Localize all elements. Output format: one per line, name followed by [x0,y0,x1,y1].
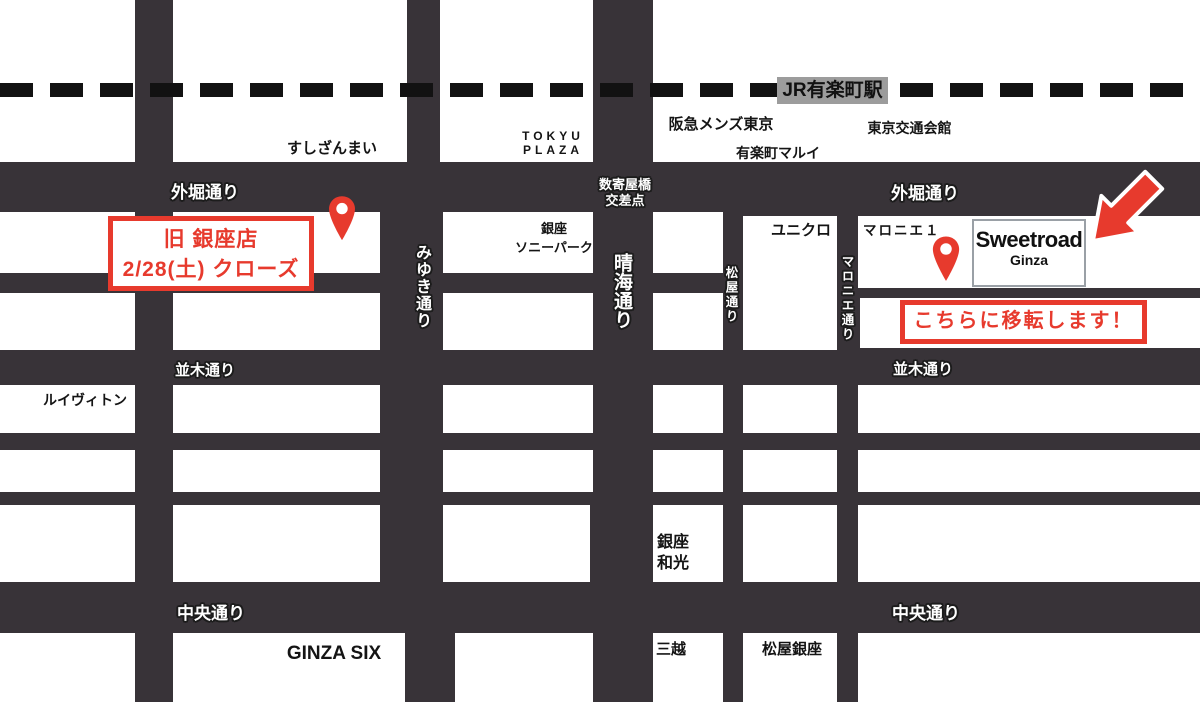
sweetroad-name: Sweetroad [974,228,1084,252]
city-block [0,633,135,702]
city-block [858,633,1200,702]
road-label-namiki-left: 並木通り [155,359,255,380]
sweetroad-subname: Ginza [974,252,1084,269]
tokyu-plaza-line1: TOKYU [503,129,603,143]
city-block [0,450,135,492]
city-block [743,505,837,582]
landmark-matsuya-ginza: 松屋銀座 [749,641,835,659]
city-block [0,293,135,350]
city-block [653,385,723,433]
road-label-matsuya: 松屋通り [724,266,737,324]
city-block [653,293,723,350]
railway-line [0,83,1200,97]
sony-park-line1: 銀座 [499,220,609,239]
city-block [455,633,593,702]
road-label-namiki-right: 並木通り [873,358,973,379]
landmark-uniqlo: ユニクロ [765,222,837,240]
map-pin-old-store-icon [327,195,357,242]
arrow-icon [1072,158,1176,262]
landmark-tokyu-plaza: TOKYU PLAZA [503,129,603,158]
city-block [0,0,135,162]
sony-park-line2: ソニーパーク [499,239,609,258]
road-label-harumi: 晴海通り [612,253,631,329]
city-block [173,505,380,582]
city-block [743,450,837,492]
intersection-label-sukiyabashi: 数寄屋橋 交差点 [580,177,670,210]
city-block [858,505,1200,582]
city-block [443,450,593,492]
old-store-line1: 旧 銀座店 [113,225,309,255]
landmark-sony-park: 銀座 ソニーパーク [499,220,609,258]
road-label-sotobori-right: 外堀通り [875,179,975,204]
relocation-callout: こちらに移転します！ [900,300,1147,344]
city-block [858,385,1200,433]
city-block [653,212,723,273]
city-block [173,0,407,162]
city-block [173,293,380,350]
station-badge: JR有楽町駅 [777,77,888,104]
landmark-kotsu-kaikan: 東京交通会館 [852,120,967,137]
landmark-hankyu-mens: 阪急メンズ東京 [656,116,786,134]
old-store-callout: 旧 銀座店 2/28(土) クローズ [108,216,314,291]
landmark-sushizanmai: すしざんまい [282,140,382,158]
city-block [743,385,837,433]
old-store-line2: 2/28(土) クローズ [113,255,309,285]
wako-line2: 和光 [657,553,689,574]
city-block [443,505,590,582]
city-block [858,450,1200,492]
landmark-louis-vuitton: ルイヴィトン [25,392,145,409]
map-pin-new-store-icon [931,235,961,283]
city-block [653,450,723,492]
intersection-label-line2: 交差点 [580,193,670,209]
landmark-marronnier-gate1: マロニエ１ [863,223,941,239]
road-label-miyuki: みゆき通り [413,244,429,329]
ginza-relocation-map: JR有楽町駅 外堀通り 外堀通り 並木通り 並木通り 中央通り 中央通り 数寄屋… [0,0,1200,702]
landmark-ginza-wako: 銀座 和光 [657,532,689,574]
tokyu-plaza-line2: PLAZA [503,143,603,157]
landmark-marui: 有楽町マルイ [723,145,833,162]
landmark-mitsukoshi: 三越 [656,641,686,659]
road-label-marronnier: マロニエ通り [840,255,853,342]
road-label-chuo-right: 中央通り [876,599,976,624]
road-label-chuo-left: 中央通り [161,599,261,624]
wako-line1: 銀座 [657,532,689,553]
landmark-ginza-six: GINZA SIX [279,643,389,666]
sweetroad-sign: Sweetroad Ginza [972,219,1086,287]
road-label-sotobori-left: 外堀通り [155,178,255,203]
city-block [173,450,380,492]
intersection-label-line1: 数寄屋橋 [580,177,670,193]
city-block [443,385,593,433]
city-block [173,385,380,433]
city-block [443,293,593,350]
city-block [0,505,135,582]
city-block [653,0,1200,162]
